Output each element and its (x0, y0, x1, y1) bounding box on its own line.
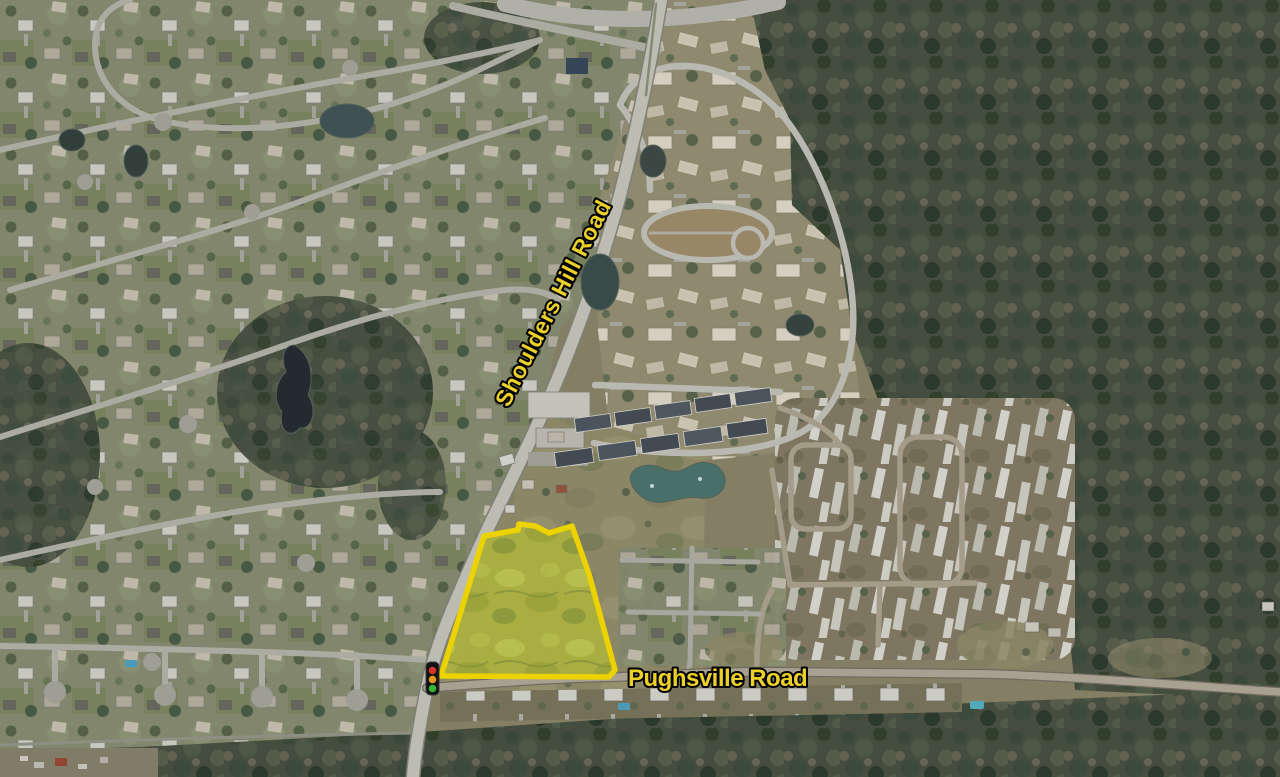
aerial-map-viewport: Shoulders Hill Road Pughsville Road (0, 0, 1280, 777)
photo-grain-overlay (0, 0, 1280, 777)
aerial-map-image: Shoulders Hill Road Pughsville Road (0, 0, 1280, 777)
